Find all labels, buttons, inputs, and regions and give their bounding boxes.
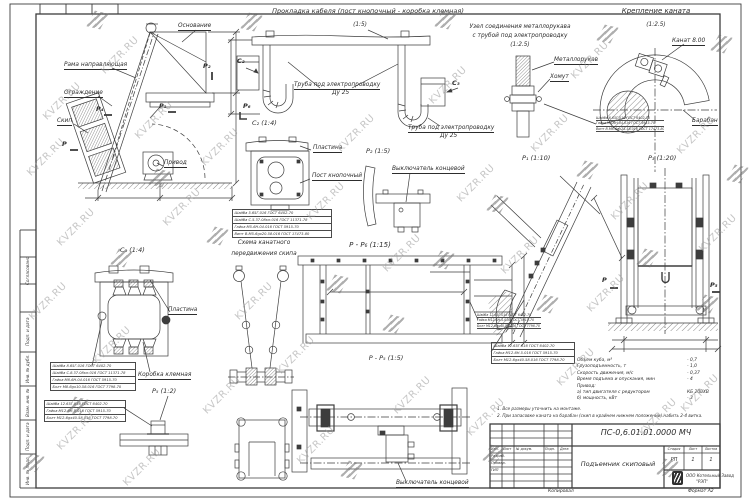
fastener-row: Болт М12-6gх40.58.016 ГОСТ 7798-70	[44, 414, 126, 422]
tb-doc-title: Подъемник скиповый	[574, 461, 662, 468]
main-assembly-view	[66, 23, 240, 201]
p1-detail-title: P₁ (1:10)	[522, 155, 550, 162]
rope-scheme-title-2: передвижения скипа	[224, 251, 304, 257]
note-1: 1. Все размеры уточнить на монтаже.	[497, 407, 581, 411]
rope-mount-scale: (1:2.5)	[626, 22, 686, 28]
post-detail-title: C₂ (1:4)	[252, 120, 277, 127]
side-label-inv-podl: Инв. № подл.	[25, 456, 30, 485]
marker-p: P	[62, 141, 67, 148]
marker-p6: P₆	[243, 103, 251, 110]
marker-p3-p: P	[602, 277, 607, 284]
side-label-podp-data-2: Подп. и дата	[25, 422, 30, 451]
tb-sheets-value: 1	[702, 458, 720, 463]
limit-switch-detail	[363, 166, 430, 232]
tb-company-1: ООО Котельный Завод	[686, 474, 734, 478]
drawing-linework	[0, 0, 750, 500]
fastener-row: Винт В.М5-6gх20.58.016 ГОСТ 17473-80	[232, 230, 332, 238]
fastener-row: Винт В.М6-6gх25.58.016 ГОСТ 17473-80	[596, 126, 664, 132]
p3-view-title: P₃ (1:20)	[648, 155, 676, 162]
marker-p4: P₄	[96, 106, 104, 113]
tb-stage-label: Стадия	[664, 448, 684, 451]
label-clamp: Хомут	[550, 74, 569, 82]
label-plate-1: Пластина	[313, 145, 342, 153]
margin-format: Формат А2	[688, 490, 714, 495]
side-label-podp-data-1: Подп. и дата	[25, 317, 30, 346]
fastener-row: Болт М12-6gх40.58.016 ГОСТ 7798-70	[491, 356, 575, 364]
side-label-vzam-inv: Взам. инв. №	[25, 389, 30, 417]
label-drive: Привод	[164, 160, 187, 168]
fastener-list-a: Шайба 5.65Г.016 ГОСТ 6402-70 Шайба С.5.3…	[232, 210, 332, 238]
spec-value: - 3	[687, 396, 723, 402]
p5-detail-title: P₅ (1:2)	[152, 388, 176, 395]
sleeve-node-title-2: с трубой под электропроводку	[456, 33, 584, 39]
fastener-row: Болт М8-6gх10.58.016 ГОСТ 7798-70	[50, 383, 136, 391]
pp5-section-view	[292, 388, 470, 481]
spec-row: б) мощность, кВт- 3	[577, 396, 723, 402]
tb-company-2: "РЭП"	[686, 480, 718, 484]
label-tube-dn-2: Ду 25	[440, 133, 457, 139]
fastener-row: Болт М12-6gх40.58.016 ГОСТ 7798-70	[477, 323, 541, 329]
tb-col-list: Лист	[503, 448, 511, 451]
pp6-view-title: P - P₆ (1:15)	[330, 242, 410, 249]
marker-p3-p5: P₅	[710, 282, 718, 289]
label-tube-2: Труба под электропроводку	[408, 125, 494, 133]
label-plate-2: Пластина	[168, 307, 197, 315]
tb-col-docnum: № докум.	[516, 448, 532, 451]
switch-detail-title: P₂ (1:5)	[366, 148, 390, 155]
label-rope: Канат 8.00	[672, 38, 705, 46]
label-tube-dn-1: Ду 25	[332, 90, 349, 96]
sleeve-node-scale: (1:2.5)	[490, 42, 550, 48]
marker-p1: P₁	[159, 103, 167, 110]
rope-mount-title: Крепление каната	[606, 8, 706, 15]
label-fence: Ограждение	[64, 90, 103, 98]
label-guide-frame: Рама направляющая	[64, 62, 127, 70]
label-post-button: Пост кнопочный	[312, 173, 362, 181]
tb-sheet-value: 1	[684, 458, 702, 463]
tb-stage-value: РП	[664, 458, 684, 463]
post-button-detail	[246, 137, 311, 210]
tb-row-gip: ГИП	[491, 469, 498, 473]
side-label-inv-dubl: Инв. № дубл.	[25, 354, 30, 383]
tb-doc-number: ПС-0,6.01.01.0000 МЧ	[572, 429, 720, 437]
tech-specs: Объем куба, м³- 0,7 Грузоподъемность, т-…	[577, 358, 723, 403]
tb-sheets-label: Листов	[702, 448, 720, 451]
sleeve-node-detail	[505, 56, 596, 137]
label-limit-switch-2: Выключатель концевой	[396, 480, 469, 488]
fastener-list-e: Шайба 12.65Г.016 ГОСТ 6402-70 Гайка М12-…	[491, 343, 575, 364]
pp5-view-title: P - P₅ (1:5)	[348, 355, 424, 362]
cable-view-scale: (1:5)	[330, 22, 390, 28]
margin-copied: Копировал	[548, 490, 574, 495]
label-limit-switch-1: Выключатель концевой	[392, 166, 465, 174]
side-label-soglasovano: Согласовано	[25, 257, 30, 285]
company-logo-icon	[672, 471, 683, 485]
tb-col-podp: Подп.	[545, 448, 555, 451]
tb-col-izm: Изм.	[491, 448, 499, 451]
label-drum: Барабан	[692, 118, 718, 126]
tb-sheet-label: Лист	[684, 448, 702, 451]
label-base: Основание	[178, 23, 211, 31]
label-skip: Скип	[57, 118, 72, 126]
terminal-box-detail	[92, 266, 173, 372]
note-2: 2. При запасовке каната на барабан (скип…	[497, 414, 703, 418]
box-detail-title: C₃ (1:4)	[120, 247, 145, 254]
fastener-list-d: Шайба 12.65Г.016 ГОСТ 6402-70 Гайка М12-…	[44, 401, 126, 422]
rope-scheme-title-1: Схема канатного	[228, 240, 300, 246]
tb-row-prover: Провер.	[491, 462, 506, 466]
label-terminal-box: Коробка клемная	[138, 372, 191, 380]
cable-routing-view	[228, 30, 458, 127]
label-hose: Металлорукав	[554, 57, 598, 65]
fastener-list-f: Шайба 12.65Г.016 ГОСТ 6402-70 Гайка М12-…	[477, 313, 541, 329]
marker-p2: P₂	[203, 63, 211, 70]
tb-row-razrab: Разраб.	[491, 455, 505, 459]
label-tube-1: Труба под электропроводку	[294, 82, 380, 90]
rope-mount-view	[593, 44, 717, 172]
marker-c3: C₃	[452, 80, 460, 87]
tb-col-data: Дата	[560, 448, 569, 451]
rope-scheme-diagram	[228, 266, 294, 480]
marker-c2: C₂	[237, 58, 245, 65]
cable-view-title: Прокладка кабеля (пост кнопочный - короб…	[248, 8, 488, 15]
p3-elevation-view	[608, 168, 721, 352]
fastener-list-c: Шайба 8.65Г.016 ГОСТ 6402-70 Шайба С.8.3…	[50, 363, 136, 391]
fastener-list-b: Шайба 6.65Г.016 ГОСТ 6402-70 Гайка М6-6Н…	[596, 116, 664, 132]
spec-label: б) мощность, кВт	[577, 396, 687, 402]
p5-bolt-detail	[120, 396, 188, 455]
sleeve-node-title-1: Узел соединения металлорукава	[452, 24, 588, 30]
drawing-sheet: Прокладка кабеля (пост кнопочный - короб…	[0, 0, 750, 500]
